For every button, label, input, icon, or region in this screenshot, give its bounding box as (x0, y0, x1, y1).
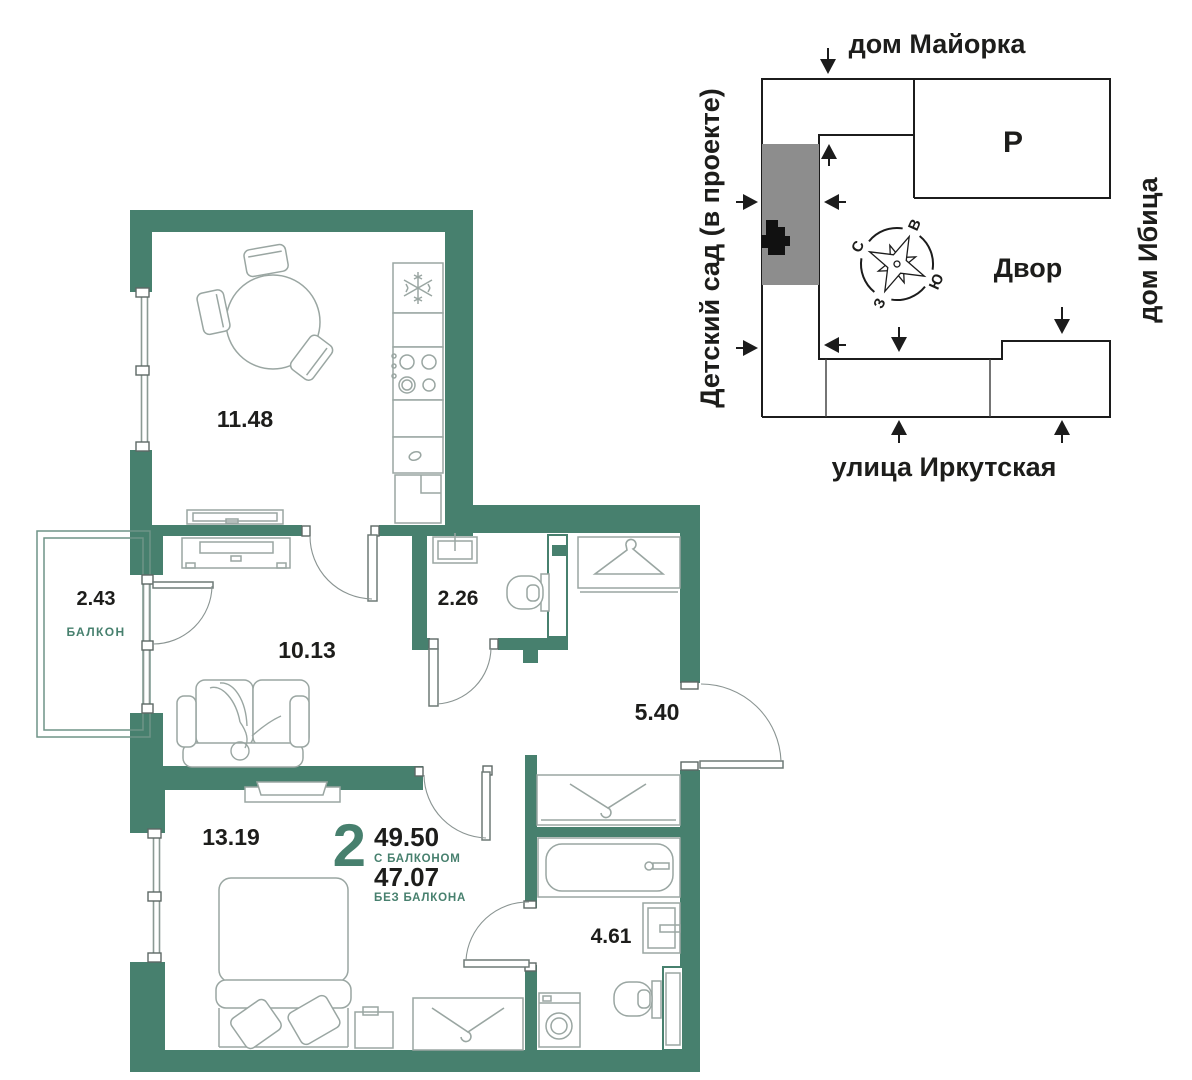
house-right-label: дом Ибица (1133, 176, 1163, 322)
site-dividers (826, 359, 990, 417)
area-with-balcony: 49.50 (374, 822, 439, 852)
dining-table (196, 244, 335, 383)
courtyard-label: Двор (994, 253, 1062, 283)
compass-east: В (905, 216, 925, 233)
nightstand (355, 1007, 393, 1048)
floorplan-page: 11.48 2.43 БАЛКОН 10.13 2.26 5.40 13.19 … (0, 0, 1192, 1080)
site-plan: С В Ю З дом Майорка Р Двор дом Ибица Дет… (695, 29, 1163, 482)
kitchen-sideboard (187, 510, 283, 524)
floor-plan: 11.48 2.43 БАЛКОН 10.13 2.26 5.40 13.19 … (37, 210, 783, 1072)
kindergarten-label: Детский сад (в проекте) (695, 88, 725, 407)
house-top-label: дом Майорка (849, 29, 1027, 59)
bathroom-toilet (614, 981, 661, 1018)
kitchen-counter (393, 400, 443, 437)
fridge (393, 263, 443, 313)
bedroom (216, 782, 523, 1051)
kitchen-area-label: 11.48 (217, 406, 273, 432)
wc-door (429, 648, 491, 706)
hall-closet-top (578, 537, 680, 592)
parking-label: Р (1003, 126, 1023, 159)
washing-machine (539, 993, 580, 1047)
compass-west: З (870, 296, 889, 312)
hallway-area-label: 5.40 (635, 699, 680, 725)
wc-toilet (507, 574, 549, 611)
entrance-door (700, 684, 783, 768)
living-area-label: 10.13 (278, 637, 336, 663)
subject-building (762, 144, 819, 285)
street-label: улица Иркутская (832, 452, 1057, 482)
bathroom-door (464, 902, 529, 967)
tv-stand (182, 538, 290, 568)
bedroom-closet (413, 998, 523, 1050)
kitchen-counter (393, 313, 443, 347)
kitchen-sink (393, 437, 443, 473)
floorplan-canvas: 11.48 2.43 БАЛКОН 10.13 2.26 5.40 13.19 … (0, 0, 1192, 1080)
bathroom-area-label: 4.61 (591, 925, 632, 948)
bedroom-tv-stand (245, 782, 340, 802)
sofa (177, 680, 309, 767)
compass-south: Ю (926, 271, 948, 292)
bedroom-area-label: 13.19 (202, 824, 260, 850)
balcony-caption: БАЛКОН (66, 625, 125, 639)
without-balcony-caption: БЕЗ БАЛКОНА (374, 892, 466, 904)
hall-closet-bottom (537, 775, 680, 825)
kitchen-window (136, 288, 149, 451)
bed (216, 878, 351, 1051)
stove (392, 347, 443, 400)
bathtub (538, 838, 680, 897)
area-without-balcony: 47.07 (374, 862, 439, 892)
kitchen (187, 244, 443, 524)
rooms-count: 2 (333, 812, 366, 879)
wc-sink (433, 533, 477, 563)
kitchen-door (310, 535, 377, 601)
bathroom-sink (643, 903, 680, 953)
wc-area-label: 2.26 (438, 587, 479, 610)
compass-north: С (848, 238, 868, 255)
apartment-summary: 2 49.50 С БАЛКОНОМ 47.07 БЕЗ БАЛКОНА (333, 812, 466, 904)
balcony-area-label: 2.43 (77, 588, 116, 610)
compass: С В Ю З (831, 199, 964, 329)
corner-cabinet (395, 475, 441, 523)
bedroom-window (148, 829, 161, 962)
